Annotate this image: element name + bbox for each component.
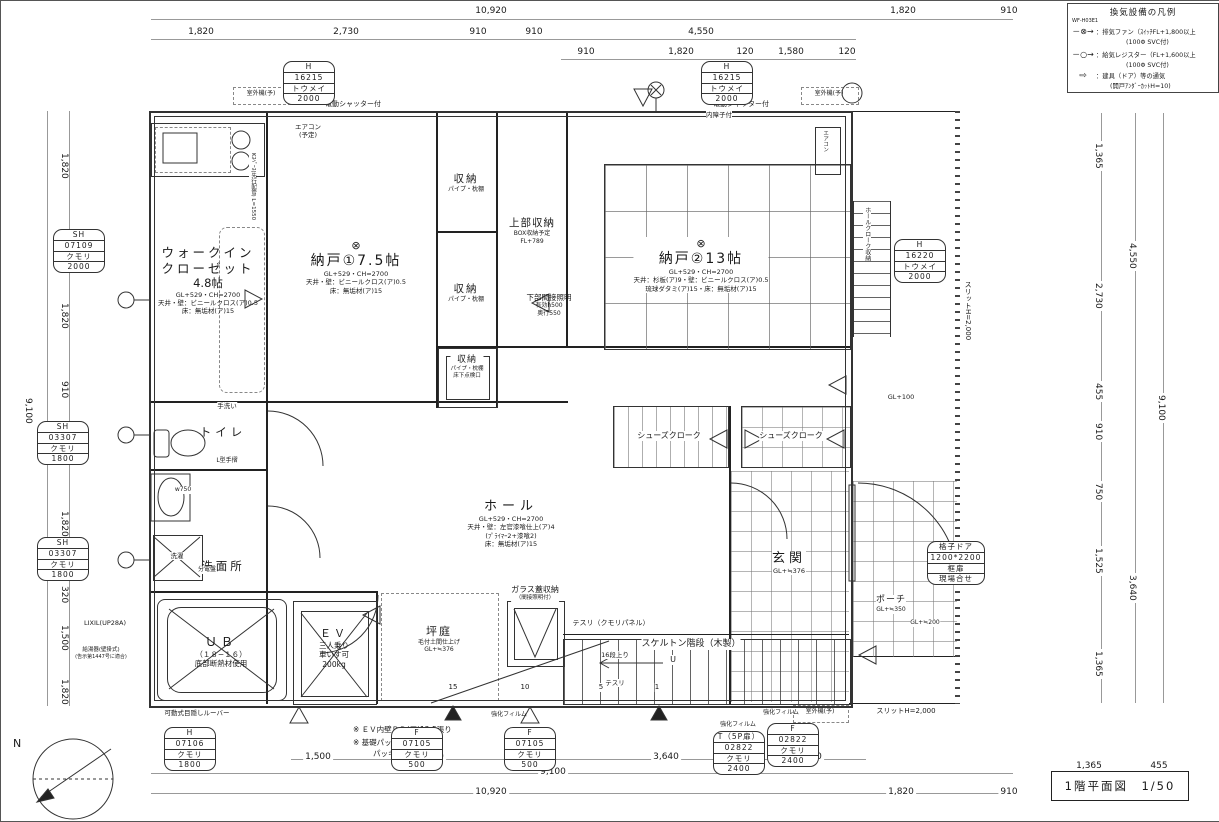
legend-row: ⇨：建具（ドア）等の通気 (開戸ｱﾝﾀﾞｰｶｯﾄH=10) [1070,71,1216,90]
outdoor-unit-label: 室外機(予) [815,90,844,98]
film-note: 強化フィルム [720,721,756,729]
window-tag: F07105クモリ500 [391,727,443,771]
kitchen-sink [163,133,197,163]
compass-arrowhead [37,789,54,802]
stair-rail2-label: テスリ [605,679,625,687]
vent-arrow-icon [634,89,652,106]
section-mark [445,706,461,720]
corner-fan-icon [842,83,862,103]
window-tag: SH03307クモリ1800 [37,537,89,581]
ventilation-legend: 換気設備の凡例 WF-H03E1 －⊗→：排気ファン（ｽｲｯﾁFL+1,800以… [1067,3,1219,93]
l-grip-note: L型手摺 [216,457,237,465]
tearai-note: 手洗い [217,402,237,410]
cloak-storage-label: ホールクローク収納 [863,207,871,261]
supply-register-icon [118,552,134,568]
glass-storage-label: ガラス蓋収納 （間接照明付） [511,585,559,602]
aircon-note: エアコン [821,130,828,152]
window-tag: F07105クモリ500 [504,727,556,771]
vent-arrow-icon [290,707,308,723]
storage-3: 収納 パイプ・枕棚 床下点検口 [450,355,483,380]
louver-note: 可動式目隠しルーバー [165,709,230,717]
panel-note: 分電盤 [198,566,216,574]
window-tag: H16215トウメイ2000 [701,61,753,105]
exhaust-fan-icon: －⊗→ [1070,26,1096,37]
lixil-note: LIXIL(UP28A) [84,619,126,627]
room-porch: ポーチ GL+≒350 [876,595,906,614]
section-mark [651,706,667,720]
supply-register-icon [118,427,134,443]
window-tag: SH03307クモリ1800 [37,421,89,465]
window-tag: F02822クモリ2400 [767,723,819,767]
inner-shoji-note: 内障子付 [706,111,732,119]
genkan-door-arc [731,483,787,539]
entry-door-tag: 格子ドア1200*2200框扉現場合せ [927,541,985,585]
slit-note-bottom: スリットH=2,000 [876,707,935,716]
storage-1: 収納 パイプ・枕棚 [448,173,484,194]
film-note: 強化フィルム [491,711,527,719]
legend-row: －○→：給気レジスター（FL+1,600以上 (100Φ SVC付) [1070,49,1216,69]
drawing-title: 1階平面図 1/50 [1051,771,1189,801]
burner-1 [232,131,250,149]
stair-num: 5 [599,683,603,692]
room-tsuboniwa: 坪庭 毛付土間仕上げ GL+≒376 [418,625,460,654]
window-tag: SH07109クモリ2000 [53,229,105,273]
supply-register-icon: －○→ [1070,49,1096,60]
door-tag: T（5P扉）02822クモリ2400 [713,731,765,775]
legend-title: 換気設備の凡例 [1068,6,1218,18]
gl100-note: GL+100 [888,393,915,401]
stair-up-label: U [670,655,676,665]
floor-plan-sheet: 10,920 1,820 910 1,820 2,730 910 910 4,5… [0,0,1219,822]
window-tag: H16220トウメイ2000 [894,239,946,283]
porch-gl2: GL+≒200 [910,619,940,627]
aircon-note: エアコン (予定) [295,123,321,139]
washroom-door-arc [268,506,320,558]
k-space-note: Kｽﾍﾟｰｽ(先行配管) L=1550 [249,153,256,220]
slit-note-right: スリットH=2,000 [963,281,972,340]
storage-2: 収納 パイプ・枕棚 [448,283,484,304]
stair-num: 15 [449,683,458,692]
legend-code: WF-H03E1 [1072,18,1098,24]
burner-2 [232,152,250,170]
toilet-tank [154,430,169,457]
vent-arrow-icon [829,376,846,394]
w750-note: w750 [175,486,191,494]
room-genkan: 玄関 GL+≒376 [772,551,806,575]
plan-linework [1,1,1219,821]
door-vent-icon: ⇨ [1070,71,1096,81]
stair-num: 1 [655,683,659,692]
stair-name: スケルトン階段（木製） [641,639,740,650]
shutter-note: 電動シャッター付 [325,100,381,109]
stair-num: 10 [521,683,530,692]
room-nando2: ⊗ 納戸②13帖 GL+529・CH=2700 天井：杉板(ア)9・壁：ビニール… [633,237,768,293]
washbasin [158,478,184,516]
stair-steps: 16段上り [601,651,629,659]
window-tag: H16215トウメイ2000 [283,61,335,105]
toilet-door-arc [268,411,323,466]
window-tag: H07106クモリ1800 [164,727,216,771]
entry-sliding-door [849,485,855,581]
compass-n-label: N [13,737,21,751]
vent-arrow-icon [859,646,876,664]
stair-rail-label: テスリ（クモリパネル） [573,619,650,628]
room-ev: ＥＶ 三人乗り 車いす可 200kg [319,627,349,669]
room-ub: ＵＢ （１８−１６） 底部断熱材使用 [195,635,248,669]
heater-note: 給湯器(壁掛式) (告示第1447号に適合) [75,647,127,660]
outdoor-unit-label: 室外機(予) [247,90,276,98]
vent-arrow-icon [827,430,844,448]
room-hall: ホール GL+529・CH=2700 天井・壁：左官漆喰仕上(ア)4 (ﾌﾟﾗｲ… [467,499,554,548]
glass-storage-v [514,609,556,657]
legend-row: －⊗→：排気ファン（ｽｲｯﾁFL+1,800以上 (100Φ SVC付) [1070,26,1216,46]
shoe-closet-label: シューズクローク [759,431,823,441]
room-wic: ウォークイン クローゼット 4.8帖 GL+529・CH=2700 天井・壁：ビ… [158,245,258,315]
shoe-closet-label: シューズクローク [637,431,701,441]
vent-arrow-icon [710,430,727,448]
room-toilet: トイレ [200,425,247,439]
lower-indirect-light: 下部間接照明 有効h500 奥行550 [527,293,572,317]
upper-storage: 上部収納 BOX収納予定 FL+789 [509,217,555,245]
outdoor-unit-label: 室外機(予) [806,708,835,716]
compass-needle [41,749,111,797]
laundry-note: 洗濯 [171,552,184,560]
supply-register-icon [118,292,134,308]
film-note: 強化フィルム [763,709,799,717]
room-nando1: ⊗ 納戸①7.5帖 GL+529・CH=2700 天井・壁：ビニールクロス(ア)… [306,239,406,295]
